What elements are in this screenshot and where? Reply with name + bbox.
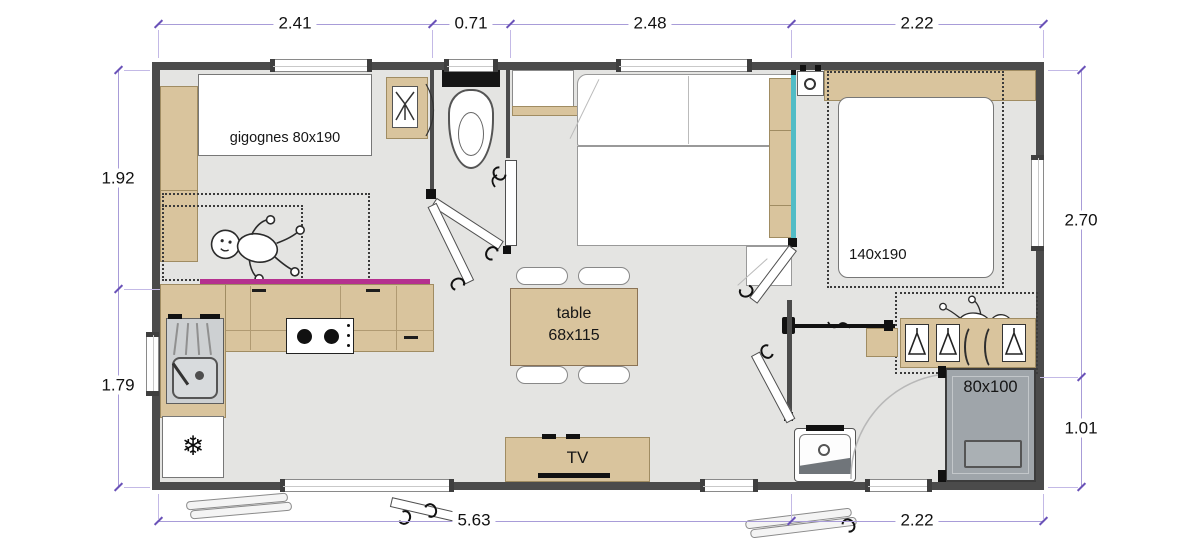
dim-extension	[158, 494, 159, 519]
dim-extension	[1048, 70, 1078, 71]
shower-80x100: 80x100	[945, 368, 1036, 482]
sliding-bay-door	[280, 479, 454, 492]
dining-chair	[578, 366, 630, 384]
burner-icon	[324, 329, 339, 344]
burner-icon	[297, 329, 312, 344]
tall-cabinet	[512, 70, 574, 108]
dim-line-left	[118, 70, 119, 487]
sink-drain	[195, 371, 204, 380]
wc-door-hinge	[503, 246, 511, 254]
washbasin-backbar	[806, 425, 844, 431]
sofa-seat	[577, 146, 793, 246]
dim-label-left-1: 1.92	[96, 169, 139, 188]
dim-extension	[791, 30, 792, 58]
window	[1031, 155, 1044, 251]
closet-bowtie-icon	[394, 90, 416, 124]
window	[444, 59, 498, 72]
dim-extension	[510, 30, 511, 58]
snowflake-icon: ❄	[163, 431, 223, 462]
partition-teal	[791, 70, 796, 238]
cabinet-handle-4	[404, 336, 418, 339]
hanger-icon	[937, 325, 959, 359]
kids-closet-door	[392, 86, 418, 128]
fridge: ❄	[162, 416, 224, 478]
kitchen-sink-unit	[166, 318, 224, 404]
dim-tick	[1077, 482, 1086, 491]
wc-left-wall	[430, 70, 434, 192]
sink-top-mark	[168, 314, 182, 319]
tv-cabinet-mark	[542, 434, 556, 439]
master-mattress: 140x190	[838, 97, 994, 278]
dim-extension	[791, 494, 792, 519]
shower-door-post	[938, 470, 946, 482]
dim-extension	[1040, 377, 1078, 378]
dim-extension	[124, 70, 150, 71]
dim-label-right-2: 1.01	[1059, 419, 1102, 438]
cooktop	[286, 318, 354, 354]
dim-label-right-1: 2.70	[1059, 211, 1102, 230]
dim-label-top-4: 2.22	[895, 14, 938, 33]
wardrobe-section	[1002, 324, 1026, 362]
shelf-strip	[512, 106, 578, 116]
window	[146, 332, 159, 396]
table-label-line2: 68x115	[511, 327, 637, 345]
shower-door-post	[938, 366, 946, 378]
master-bed-label: 140x190	[849, 246, 907, 263]
dim-tick	[1039, 19, 1048, 28]
floorplan-canvas: gigognes 80x190	[0, 0, 1200, 544]
cooktop-knob	[347, 344, 350, 347]
dining-chair	[516, 267, 568, 285]
wc-right-wall	[506, 70, 510, 158]
hanger-icon	[906, 325, 928, 359]
cooktop-knob	[347, 324, 350, 327]
dim-extension	[124, 289, 160, 290]
dim-extension	[1048, 487, 1078, 488]
dim-extension	[158, 30, 159, 58]
rail-end-block	[884, 320, 893, 331]
sofa-seam	[688, 76, 689, 144]
tv-label: TV	[506, 448, 649, 468]
shower-tray	[964, 440, 1022, 468]
shower-label: 80x100	[947, 378, 1034, 397]
toilet-bowl-inner	[458, 112, 484, 156]
partition-cap	[791, 70, 796, 75]
sofa-column-divider	[770, 205, 792, 206]
dim-extension	[124, 487, 150, 488]
cabinet-handle-2	[366, 289, 380, 292]
hanging-clothes-arc	[964, 324, 984, 370]
washbasin-drain	[818, 444, 830, 456]
sofa-side-column	[769, 78, 793, 238]
kids-wardrobe-divider	[161, 190, 197, 191]
sconce-mark	[800, 65, 806, 71]
window	[616, 59, 752, 72]
sconce-mark	[815, 65, 821, 71]
dim-label-left-2: 1.79	[96, 376, 139, 395]
sliding-door-rail	[787, 324, 895, 328]
cabinet-line-1	[250, 286, 251, 350]
dim-label-top-2: 0.71	[449, 14, 492, 33]
sink-drainer-line	[173, 323, 179, 355]
dim-extension	[1043, 494, 1044, 519]
cooktop-knob	[347, 334, 350, 337]
cabinet-line-3	[396, 286, 397, 350]
bathroom-wall	[787, 300, 792, 416]
dim-label-top-1: 2.41	[273, 14, 316, 33]
bedroom-sconce	[797, 71, 824, 96]
dim-extension	[1043, 30, 1044, 58]
sofa-backrest	[577, 74, 793, 146]
tv-screen	[538, 473, 610, 478]
dim-label-bottom-2: 2.22	[895, 511, 938, 530]
tv-cabinet-mark	[566, 434, 580, 439]
cabinet-handle-1	[252, 289, 266, 292]
wardrobe-side-block	[866, 328, 898, 357]
hanging-clothes-arc	[984, 324, 1004, 370]
wardrobe-section	[936, 324, 960, 362]
dining-chair	[578, 267, 630, 285]
wardrobe-section	[905, 324, 929, 362]
sofa-column-divider	[770, 130, 792, 131]
hanger-icon	[1003, 325, 1025, 359]
counter-edge-magenta	[200, 279, 430, 284]
window	[270, 59, 372, 72]
kids-door-hinge	[426, 189, 436, 199]
dining-table: table 68x115	[510, 288, 638, 366]
toilet-tank	[442, 70, 500, 87]
sink-drainer-line	[185, 323, 189, 355]
dim-label-bottom-1: 5.63	[452, 511, 495, 530]
dim-extension	[432, 30, 433, 58]
table-label-line1: table	[511, 305, 637, 323]
sink-top-mark	[200, 314, 220, 319]
entrance-door-threshold	[700, 479, 758, 492]
sconce-bulb-icon	[804, 78, 816, 90]
dim-tick	[114, 482, 123, 491]
dining-chair	[516, 366, 568, 384]
sink-drainer-line	[206, 323, 212, 355]
kids-bed-label: gigognes 80x190	[198, 130, 372, 146]
sink-drainer-line	[196, 323, 200, 355]
window	[865, 479, 932, 492]
dim-label-top-3: 2.48	[628, 14, 671, 33]
